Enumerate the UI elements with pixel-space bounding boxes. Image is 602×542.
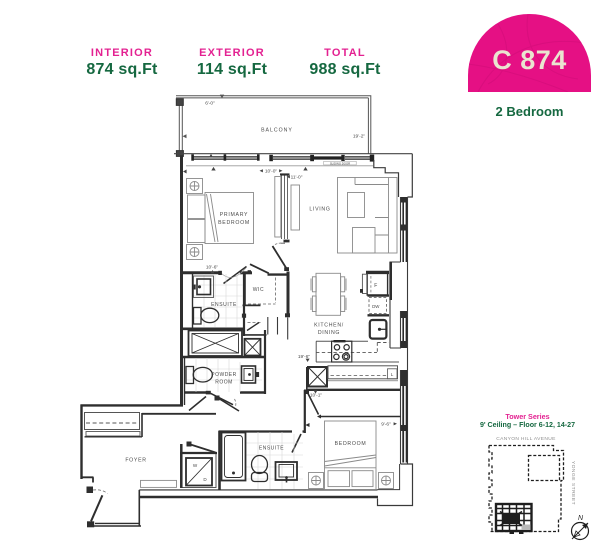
svg-text:10'-0": 10'-0" [265,169,278,175]
svg-text:DINING: DINING [318,330,340,336]
svg-text:10'-6": 10'-6" [206,265,219,271]
svg-text:ENSUITE: ENSUITE [259,446,284,452]
svg-text:BALCONY: BALCONY [261,128,293,134]
svg-text:FOYER: FOYER [125,458,146,464]
svg-text:BEDROOM: BEDROOM [218,220,250,226]
svg-text:10'-1": 10'-1" [310,393,323,399]
svg-text:6'-0": 6'-0" [205,101,215,107]
svg-text:F: F [374,283,377,289]
svg-text:N: N [578,515,584,522]
svg-text:CANYON HILL AVENUE: CANYON HILL AVENUE [496,436,556,442]
svg-text:ROOM: ROOM [215,380,233,386]
svg-text:DW: DW [372,304,380,309]
svg-text:W: W [193,463,198,468]
svg-text:11'-0": 11'-0" [291,175,303,181]
svg-text:SLIDING DOOR: SLIDING DOOR [330,161,350,165]
svg-text:YONGE STREET: YONGE STREET [570,461,576,505]
svg-text:LIVING: LIVING [309,207,330,213]
svg-text:PRIMARY: PRIMARY [220,212,248,218]
svg-text:KITCHEN/: KITCHEN/ [314,323,344,329]
svg-text:L: L [391,372,394,377]
svg-text:9'-6": 9'-6" [381,422,391,428]
svg-text:BEDROOM: BEDROOM [335,441,367,447]
svg-text:D: D [203,477,207,482]
svg-text:POWDER: POWDER [211,372,237,378]
svg-text:WIC: WIC [253,287,265,293]
svg-text:19'-2": 19'-2" [353,134,366,140]
svg-text:ENSUITE: ENSUITE [211,302,237,308]
